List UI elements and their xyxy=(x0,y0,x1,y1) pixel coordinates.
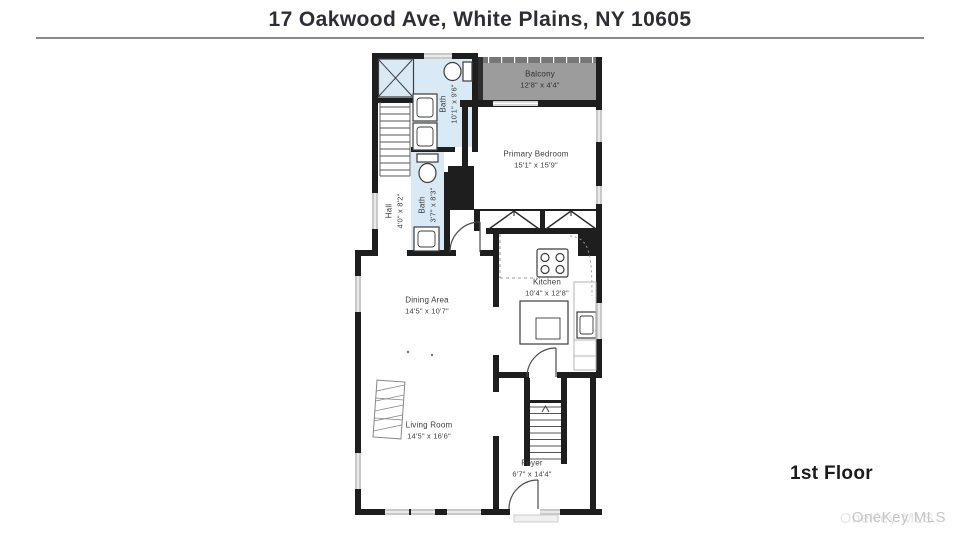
entry-stoop xyxy=(514,515,558,522)
room-label-foyer: Foyer 6'7" x 14'4" xyxy=(512,458,551,479)
room-label-primary-bedroom: Primary Bedroom 15'1" x 15'9" xyxy=(503,149,568,170)
toilet-icon-hall-bath xyxy=(417,154,438,183)
closet-front-line xyxy=(474,209,602,211)
wall-bottom-2 xyxy=(435,509,447,515)
side-steps-hatch xyxy=(373,380,405,439)
sink-icon-hall-bath xyxy=(414,227,439,251)
stove-icon xyxy=(537,249,568,277)
wall-kitchen-bottom-left xyxy=(493,372,529,378)
room-label-dining-area: Dining Area 14'5" x 10'7" xyxy=(405,295,449,316)
room-label-kitchen: Kitchen 10'4" x 12'8" xyxy=(525,277,569,298)
room-label-living-room: Living Room 14'5" x 16'6" xyxy=(406,420,453,441)
room-label-hall: Hall 4'0" x 8'2" xyxy=(384,194,405,229)
closet-post-left xyxy=(474,209,480,231)
wall-kitchen-chunk xyxy=(578,228,602,256)
watermark: OneKey MLS xyxy=(852,509,946,526)
wall-chunk xyxy=(448,166,474,210)
wall-divider-upper xyxy=(493,234,499,307)
wall-bedroom-left xyxy=(462,100,468,166)
wall-stair-closet-divider xyxy=(530,400,561,403)
kitchen-island xyxy=(520,301,568,344)
wall-stair-right xyxy=(561,378,567,464)
floor-label: 1st Floor xyxy=(790,463,873,485)
vanity-sink-icon-1 xyxy=(413,94,437,121)
window-mullion xyxy=(409,509,411,515)
kitchen-sink-icon xyxy=(577,312,596,338)
main-stairs xyxy=(380,102,410,176)
wall-kitchen-bottom-right xyxy=(557,372,602,378)
wall-bottom-1 xyxy=(355,509,385,515)
balcony-left-wall xyxy=(478,57,483,103)
floor-plan-drawing xyxy=(0,0,960,540)
door-entry xyxy=(509,480,538,509)
wall-bottom-4 xyxy=(560,509,602,515)
closet-post-mid xyxy=(540,209,545,231)
wall-stair-left xyxy=(524,378,530,466)
plan-dots xyxy=(407,351,433,356)
wall-shower-bottom xyxy=(377,98,415,103)
room-label-bath-upper: Bath 10'1" x 9'6" xyxy=(438,84,459,123)
wall-foyer-right xyxy=(590,378,596,509)
room-label-balcony: Balcony 12'8" x 4'4" xyxy=(520,69,559,90)
foyer-stairs xyxy=(530,406,561,459)
door-kitchen xyxy=(527,348,556,377)
wall-bottom-3 xyxy=(481,509,510,515)
room-label-bath-hall: Bath 3'7" x 8'3" xyxy=(417,188,438,223)
wall-foyer-left xyxy=(493,436,499,515)
floorplan-page: 17 Oakwood Ave, White Plains, NY 10605 xyxy=(0,0,960,540)
vanity-sink-icon-2 xyxy=(413,123,437,150)
toilet-icon-upper xyxy=(444,62,472,81)
